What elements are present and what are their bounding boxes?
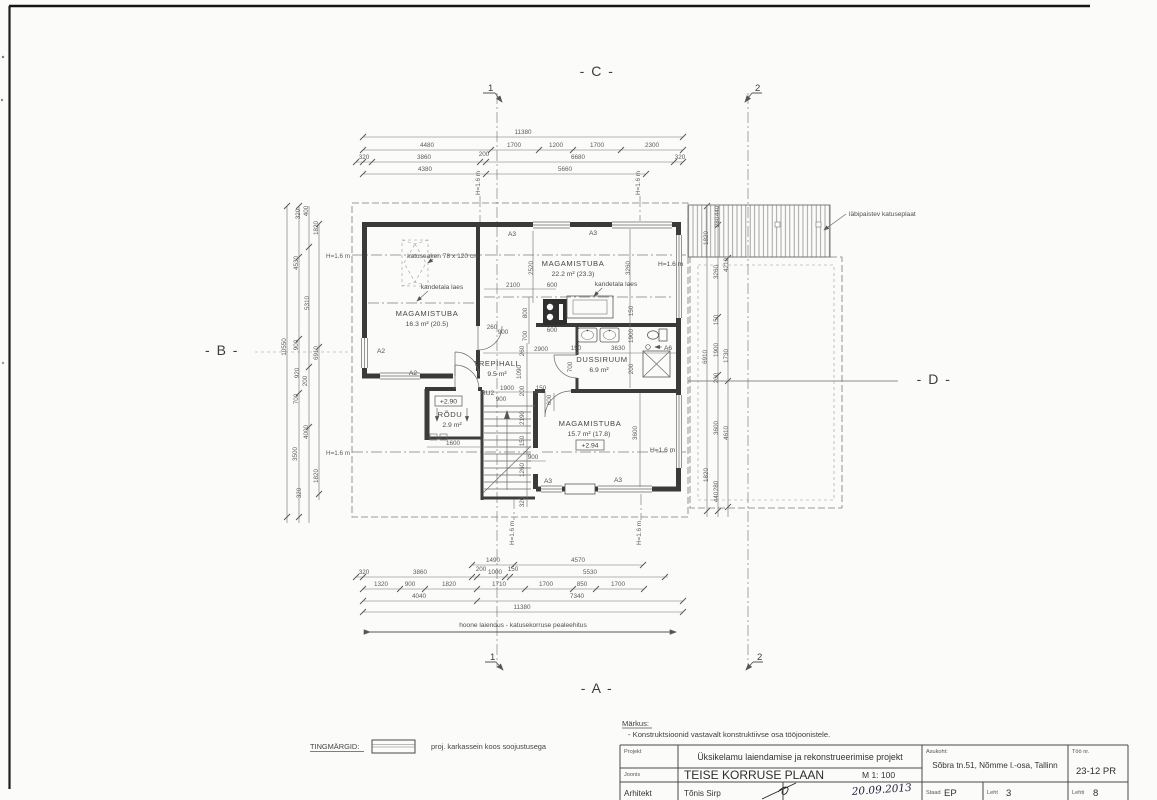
dim-label: 200 — [302, 375, 309, 386]
dim-label: 3630 — [611, 345, 626, 352]
dim-label: 6680 — [571, 154, 586, 161]
dim-label: 1710 — [492, 581, 507, 588]
dim-label: 900 — [498, 329, 509, 336]
dim-label: 320 — [295, 208, 302, 219]
room-name-bed1: MAGAMISTUBA — [396, 309, 459, 318]
dim-label: 260 — [487, 324, 498, 331]
room-name-balcony: RÕDU — [438, 410, 463, 419]
legend-title: TINGMÄRGID: — [310, 742, 359, 751]
dim-label: 800 — [522, 307, 529, 318]
dim-label: 320 — [519, 496, 526, 507]
too-nr-label: Töö nr. — [1072, 749, 1090, 755]
beam-label-left: kandetala laes — [421, 284, 464, 291]
dim-label: 200 — [479, 151, 490, 158]
h-marker: H=1.6 m — [326, 450, 350, 457]
section-arrow-1-top — [483, 93, 502, 102]
chimney-stove — [543, 299, 567, 325]
title-block: Projekt Üksikelamu laiendamise ja rekons… — [620, 745, 1128, 800]
dim-label: 700 — [567, 361, 574, 372]
dim-label: 920 — [294, 367, 301, 378]
roof-outlines: läbipaistev katuseplaat — [352, 203, 916, 517]
arhitekt-value: Tõnis Sirp — [684, 789, 721, 798]
window-tag-a3: A3 — [614, 477, 622, 484]
dim-label: 700 — [522, 330, 529, 341]
section-arrow-2-bottom — [746, 662, 763, 670]
dim-label: 5660 — [558, 166, 573, 173]
dim-label: 900 — [405, 581, 416, 588]
axis-label-a: - A - — [581, 680, 613, 696]
window-top-2 — [612, 221, 672, 229]
window-tag-a2: A2 — [377, 348, 385, 355]
dim-label: 6910 — [313, 346, 320, 361]
shower-tray — [643, 351, 670, 377]
projekt-value: Üksikelamu laiendamise ja rekonstrueerim… — [697, 752, 903, 762]
dim-label: 1000 — [488, 569, 503, 576]
dim-label: 1700 — [507, 142, 522, 149]
dim-label: 3860 — [417, 154, 432, 161]
staad-label: Staad — [926, 790, 941, 796]
dim-label: 600 — [547, 327, 558, 334]
dim-label: 200 — [713, 372, 720, 383]
window-tag-a3: A3 — [508, 231, 516, 238]
dim-label: 4380 — [418, 166, 433, 173]
dim-label: 200 — [476, 566, 487, 573]
dim-label: 1820 — [313, 221, 320, 236]
dim-label: 1260 — [519, 463, 526, 478]
dim-label: 4480 — [420, 142, 435, 149]
h-marker: H=1.6 m — [475, 171, 482, 195]
dim-label: 320 — [359, 569, 370, 576]
room-area-bed1: 16.3 m² (20.5) — [406, 321, 449, 328]
toilet — [648, 329, 668, 341]
legend-wall-symbol — [372, 740, 415, 753]
h-marker: H=1.6 m — [636, 521, 643, 545]
dim-label: 1600 — [446, 440, 461, 447]
window-bed3-sill — [565, 484, 595, 494]
notes-title: Märkus: — [622, 719, 649, 728]
walls — [362, 222, 681, 500]
dim-label: 1900 — [500, 385, 515, 392]
room-name-bed3: MAGAMISTUBA — [559, 419, 622, 428]
roof-window-symbol — [402, 240, 428, 286]
dim-label: 5530 — [583, 569, 598, 576]
axis-label-d: - D - — [917, 371, 952, 387]
level-bed3: +2.94 — [581, 443, 598, 450]
room-area-hall: 9.5 m² — [487, 371, 507, 378]
dim-label: 1200 — [549, 142, 564, 149]
washbasin-2 — [600, 328, 619, 342]
projekt-label: Projekt — [624, 749, 642, 755]
window-bed3-1 — [541, 485, 562, 493]
cabinet — [567, 296, 613, 318]
dim-label: 2300 — [645, 142, 660, 149]
axis-label-c: - C - — [580, 63, 615, 79]
dim-label: 320 — [359, 154, 370, 161]
dim-label: 900 — [496, 396, 507, 403]
section-mark-1-bottom: 1 — [490, 652, 495, 663]
room-name-hall: TREPIHALL — [474, 359, 521, 368]
too-nr-value: 23-12 PR — [1076, 766, 1116, 777]
lehti-value: 8 — [1093, 788, 1098, 799]
dim-label: 1700 — [611, 581, 626, 588]
section-arrow-2-top — [745, 93, 762, 102]
dim-label: 4530 — [293, 256, 300, 271]
dim-label: 11380 — [513, 604, 531, 611]
staad-value: EP — [944, 788, 957, 799]
architect-signature — [762, 783, 796, 799]
dim-label: 3600 — [632, 426, 639, 441]
dim-label: 1730 — [723, 349, 730, 364]
dim-label: 5310 — [304, 296, 311, 311]
room-name-shower: DUSSIRUUM — [576, 355, 627, 364]
dim-label: 260 — [519, 345, 526, 356]
extension-note: hoone laiendus - katusekorruse pealeehit… — [459, 622, 587, 629]
h-marker: H=1.6 m — [658, 261, 684, 268]
dim-label: 3260 — [625, 261, 632, 276]
arhitekt-label: Arhitekt — [624, 789, 652, 798]
dim-label: 200 — [519, 385, 526, 396]
leht-value: 3 — [1006, 788, 1011, 799]
dim-label: 1900 — [628, 329, 635, 344]
dim-label: 4610 — [723, 426, 730, 441]
legend-item: proj. karkassein koos soojustusega — [431, 742, 547, 751]
dim-label: 1320 — [374, 581, 389, 588]
h-marker: H=1.6 m — [650, 447, 676, 454]
dim-label: 6910 — [702, 350, 709, 365]
dim-label: 600 — [546, 394, 553, 405]
windows — [360, 221, 682, 494]
bottom-dimension-block: 1490 4570 320 3860 200 1000 150 5530 132… — [353, 494, 686, 632]
dim-label: 320 — [296, 487, 303, 498]
dim-label: 150 — [508, 566, 519, 573]
dim-label: 4000 — [303, 425, 310, 440]
h-marker: H=1.6 m — [326, 253, 350, 260]
dim-label: 1820 — [442, 581, 457, 588]
notes: Märkus: - Konstruktsioonid vastavalt kon… — [622, 719, 830, 739]
window-left — [360, 338, 369, 368]
leht-label: Leht — [987, 790, 998, 796]
dim-label: 900 — [293, 339, 300, 350]
dim-label: 150 — [571, 345, 582, 352]
door-tag-a6: A6 — [664, 345, 672, 352]
dim-label: 1700 — [590, 142, 605, 149]
dim-label: 3500 — [292, 447, 299, 462]
dim-label: 150 — [519, 435, 526, 446]
transparent-roof-plate — [688, 205, 830, 257]
dim-label: 11380 — [514, 129, 532, 136]
window-tag-a3: A3 — [589, 230, 597, 237]
dim-label: 3860 — [413, 569, 428, 576]
dim-label: 3260 — [713, 265, 720, 280]
beam-label-right: kandetala laes — [595, 281, 638, 288]
legend: TINGMÄRGID: proj. karkassein koos soojus… — [310, 740, 547, 753]
room-area-bed2: 22.2 m² (23.3) — [552, 271, 595, 278]
stair-direction-arrow — [504, 410, 510, 419]
level-balcony: +2.90 — [440, 399, 457, 406]
section-mark-2-top: 2 — [755, 83, 760, 94]
window-tag-a3: A3 — [544, 478, 552, 485]
dim-label: 2190 — [519, 411, 526, 426]
dim-label: 2520 — [528, 261, 535, 276]
tag-ru2: RU2 — [481, 390, 495, 397]
dim-label: 440 — [713, 491, 720, 502]
lehti-label: Lehti — [1072, 790, 1084, 796]
joonis-value: TEISE KORRUSE PLAAN — [684, 768, 824, 782]
roof-plate-label: läbipaistev katuseplaat — [849, 211, 916, 218]
section-arrow-1-bottom — [485, 662, 503, 670]
room-area-shower: 6.9 m² — [589, 367, 609, 374]
window-bed3-2 — [598, 485, 652, 493]
washbasin-1 — [578, 328, 597, 342]
dim-label: 200 — [628, 363, 635, 374]
scale-value: M 1: 100 — [862, 770, 895, 780]
dim-label: 10550 — [281, 338, 288, 356]
dim-label: 1490 — [486, 557, 501, 564]
h-marker: H=1.6 m — [509, 521, 516, 545]
axis-label-b: - B - — [205, 342, 239, 358]
asukoht-value: Sõbra tn.51, Nõmme l.-osa, Tallinn — [932, 761, 1058, 770]
dim-label: 600 — [547, 282, 558, 289]
dim-label: 150 — [628, 305, 635, 316]
dim-label: 400 — [303, 205, 310, 216]
dim-label: 4040 — [412, 593, 427, 600]
dim-label: 320 — [675, 154, 686, 161]
dim-label: 2100 — [506, 282, 521, 289]
dim-label: 900 — [528, 454, 539, 461]
window-right-band-2 — [675, 395, 682, 468]
section-mark-1-top: 1 — [488, 83, 493, 94]
asukoht-label: Asukoht: — [926, 749, 948, 755]
dim-label: 1820 — [703, 468, 710, 483]
dim-label: 1700 — [539, 581, 554, 588]
notes-line: - Konstruktsioonid vastavalt konstruktii… — [628, 730, 830, 739]
dim-label: 4570 — [571, 557, 586, 564]
dim-label: 850 — [577, 581, 588, 588]
window-tag-a2: A2 — [409, 370, 417, 377]
window-top-1 — [533, 221, 570, 229]
dim-label: 2900 — [534, 346, 549, 353]
floor-plan-drawing: - C - - B - - D - - A - 1 2 1 2 11380 44… — [0, 0, 1157, 800]
dim-label: 7340 — [570, 593, 585, 600]
top-dimension-block: 11380 4480 1700 1200 1700 2300 320 3860 … — [353, 129, 686, 224]
dim-label: 150 — [713, 314, 720, 325]
room-area-bed3: 15.7 m² (17.8) — [568, 431, 611, 438]
room-name-bed2: MAGAMISTUBA — [542, 259, 605, 268]
dim-label: 1900 — [713, 343, 720, 358]
dim-label: 1820 — [313, 469, 320, 484]
dim-label: 150 — [536, 385, 547, 392]
joonis-label: Joonis — [624, 772, 640, 778]
window-right-band-1 — [675, 235, 682, 318]
handwritten-date: 20.09.2013 — [850, 782, 912, 798]
section-mark-2-bottom: 2 — [757, 652, 762, 663]
h-marker: H=1.6 m — [635, 171, 642, 195]
dim-label: 1090 — [516, 365, 523, 380]
room-area-balcony: 2.9 m² — [442, 422, 462, 429]
dim-label: 280 — [713, 480, 720, 491]
left-dimension-block: 10550 320 400 4530 5310 900 920 200 700 … — [281, 203, 350, 523]
roof-window-label: katuseaken 78 x 120 cm — [407, 253, 479, 260]
scanned-floor-plan-sheet: - C - - B - - D - - A - 1 2 1 2 11380 44… — [0, 0, 1157, 800]
dim-label: 3600 — [713, 421, 720, 436]
dim-label: 700 — [293, 393, 300, 404]
